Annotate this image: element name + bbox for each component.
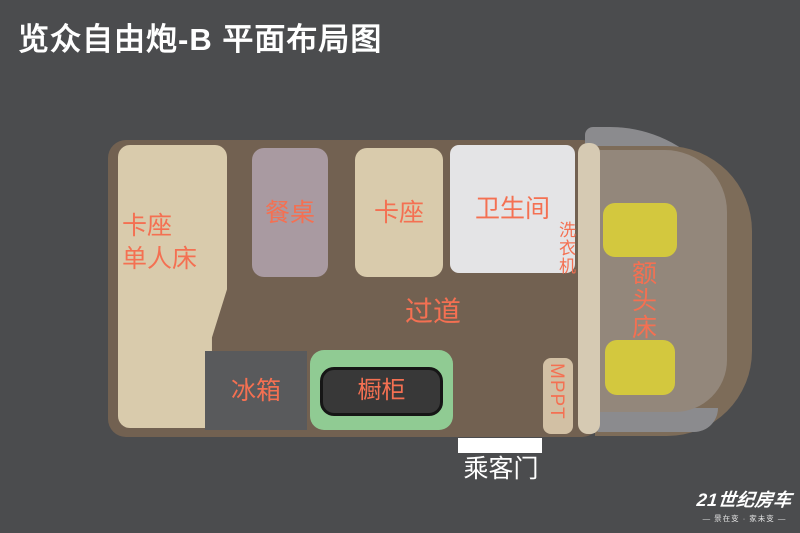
cabinet-counter: 橱柜 [320, 367, 443, 416]
zone-bathroom: 卫生间 洗衣机 [450, 145, 575, 273]
dinette-bed-label-line1: 卡座 [122, 212, 172, 240]
fridge-label: 冰箱 [231, 376, 281, 406]
zone-dinette-seat: 卡座 [355, 148, 443, 277]
floorplan-canvas: 览众自由炮-B 平面布局图 卡座 单人床 餐桌 卡座 卫生间 洗衣机 过道 冰箱… [0, 0, 800, 533]
dining-table-label: 餐桌 [265, 198, 315, 228]
zone-fridge: 冰箱 [205, 351, 307, 430]
dinette-bed-label-line2: 单人床 [122, 245, 197, 273]
overhead-bed-label: 额头床 [628, 260, 656, 341]
zone-mppt: MPPT [543, 358, 573, 434]
cabinet-label: 橱柜 [358, 377, 406, 406]
aisle-label: 过道 [393, 296, 473, 328]
zone-dining-table: 餐桌 [252, 148, 328, 277]
bathroom-label: 卫生间 [475, 194, 550, 224]
dinette-seat-label: 卡座 [374, 198, 424, 228]
cab-seat-right [605, 340, 675, 395]
brand-logo-tagline: — 景在变 · 家未变 — [703, 513, 787, 524]
cab-seat-left [603, 203, 677, 257]
passenger-door-opening [458, 438, 542, 453]
mppt-label: MPPT [547, 363, 566, 420]
cab-partition [578, 143, 600, 434]
brand-logo: 21世纪房车 — 景在变 · 家未变 — [697, 486, 792, 524]
living-area-floor: 卡座 单人床 餐桌 卡座 卫生间 洗衣机 过道 冰箱 橱柜 MPPT [108, 140, 600, 437]
page-title: 览众自由炮-B 平面布局图 [18, 14, 578, 58]
passenger-door-label: 乘客门 [455, 454, 547, 484]
zone-cabinet: 橱柜 [310, 350, 453, 430]
dinette-bed-label: 卡座 单人床 [122, 210, 197, 276]
washer-label: 洗衣机 [556, 221, 574, 275]
brand-logo-text: 21世纪房车 [696, 486, 794, 512]
